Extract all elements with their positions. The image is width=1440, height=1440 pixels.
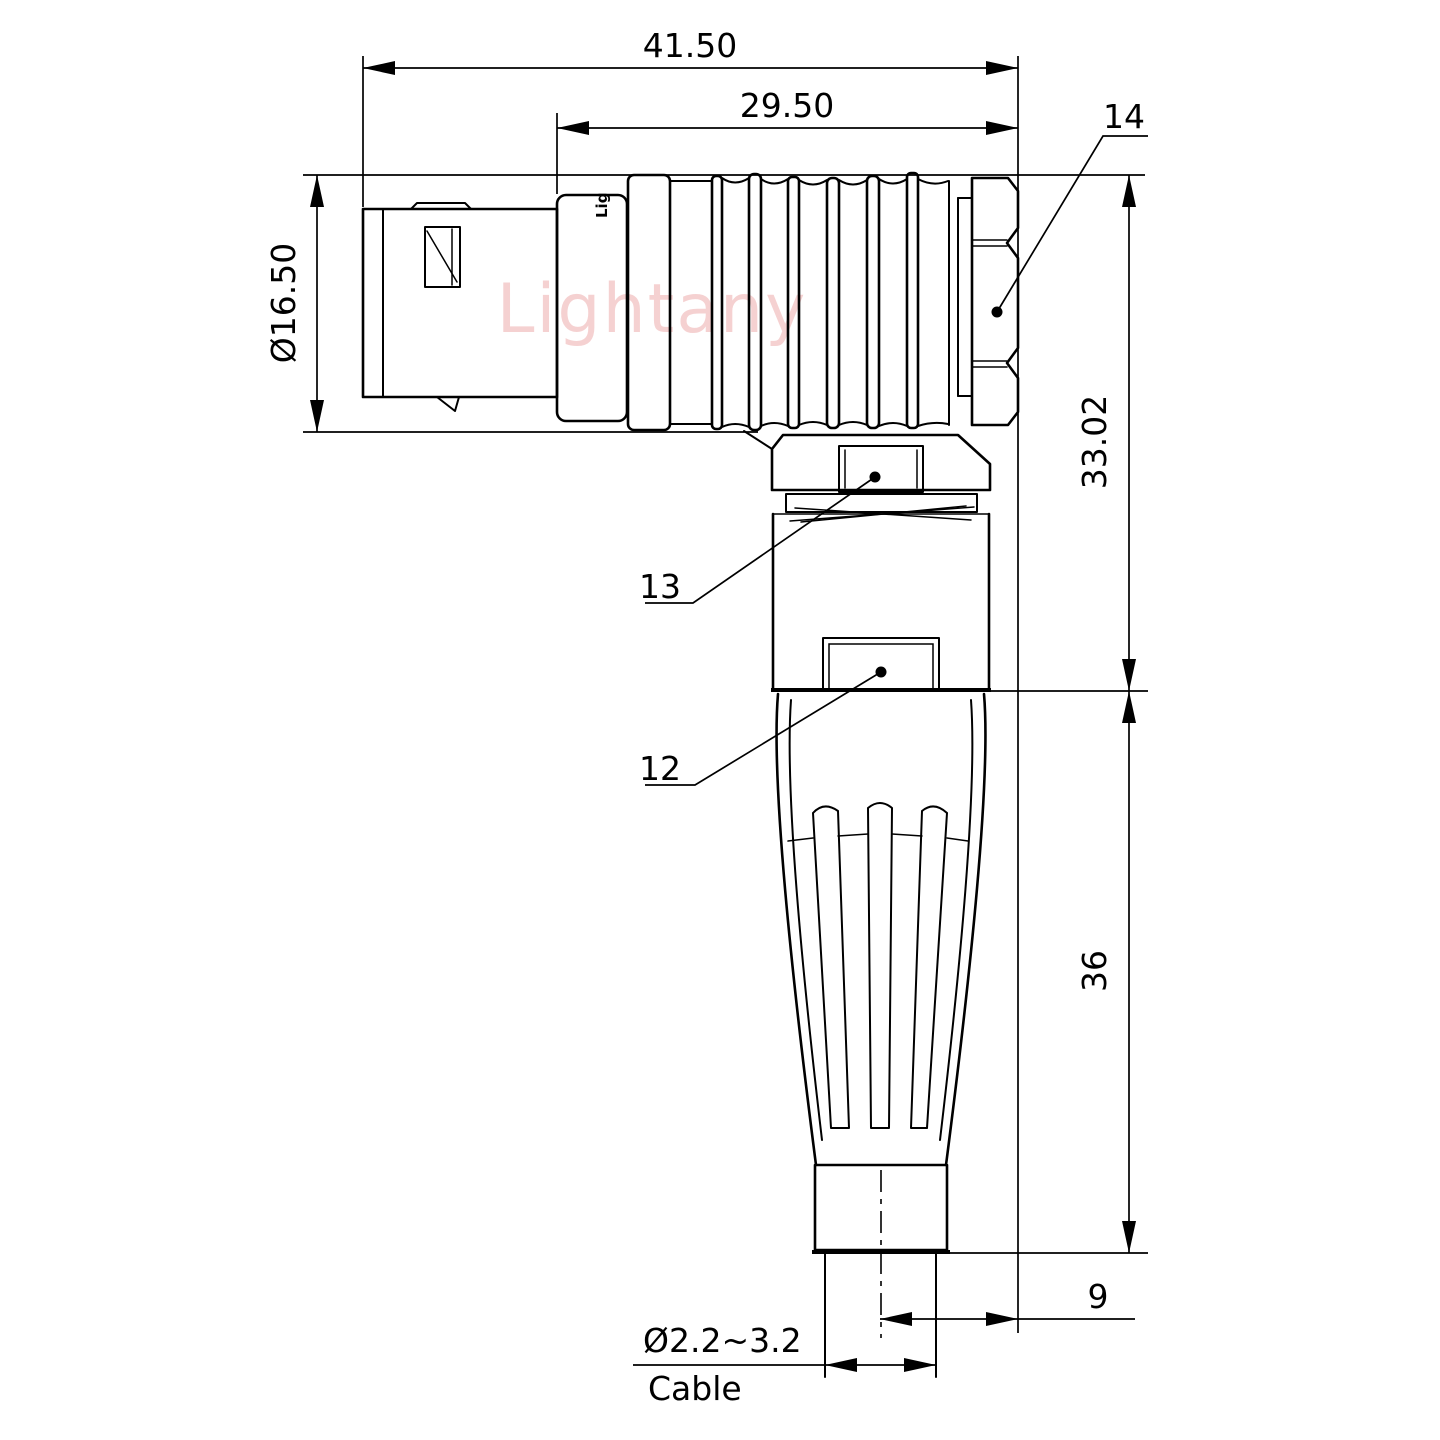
dim-body-length: 29.50	[740, 86, 834, 125]
hex-nut	[972, 178, 1018, 425]
housing-barrel	[771, 514, 991, 690]
strain-relief	[777, 694, 986, 1165]
housing-boss	[823, 638, 939, 690]
latch-tooth	[437, 397, 459, 411]
body-print-label: Lig	[593, 193, 611, 218]
gland-nut	[772, 435, 990, 492]
technical-drawing-page: Lightany Lig	[0, 0, 1440, 1440]
dim-rear-offset: 9	[1088, 1277, 1109, 1316]
dim-shell-diameter: Ø16.50	[264, 243, 303, 363]
dim-lower-height: 36	[1075, 950, 1114, 992]
dim-elbow-height: 33.02	[1075, 395, 1114, 489]
label-gland-nut: 13	[639, 567, 681, 606]
cable-label: Cable	[648, 1369, 742, 1408]
nut-neck	[949, 181, 972, 425]
dim-overall-length: 41.50	[643, 26, 737, 65]
label-hex-nut: 14	[1103, 97, 1145, 136]
gland-nut-boss	[839, 446, 923, 492]
part-label-leaders: 14 13 12	[639, 97, 1148, 788]
dim-cable-range: Ø2.2~3.2	[643, 1321, 802, 1360]
connector-elbow-view	[744, 431, 991, 1377]
label-housing: 12	[639, 749, 681, 788]
drawing-canvas: Lightany Lig	[0, 0, 1440, 1440]
